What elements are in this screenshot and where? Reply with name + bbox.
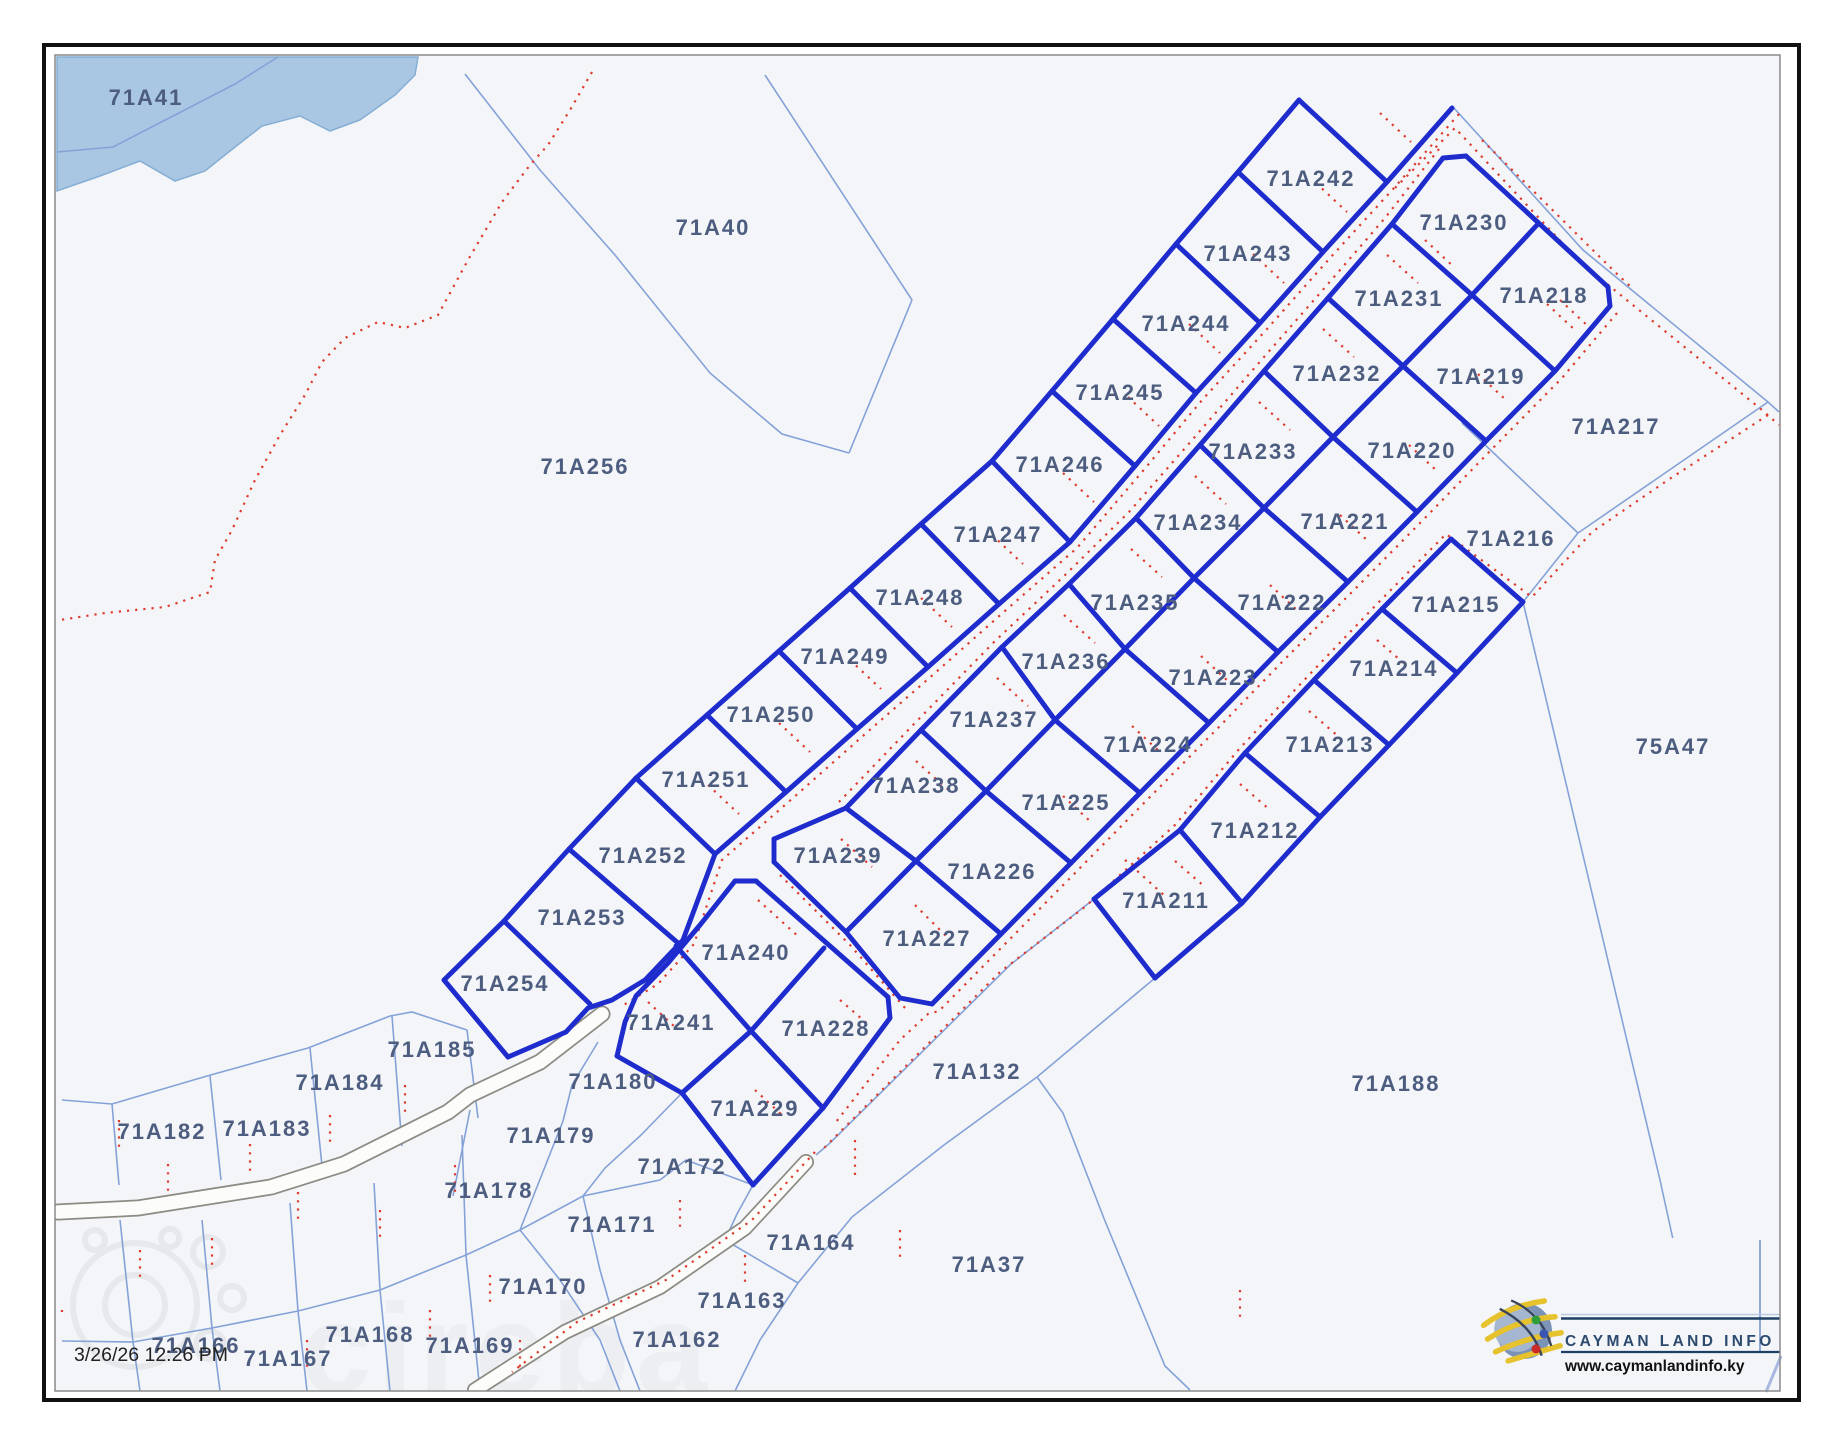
svg-text:71A183: 71A183 [222,1116,311,1141]
svg-text:71A224: 71A224 [1103,732,1192,757]
svg-text:71A170: 71A170 [498,1274,587,1299]
svg-text:71A236: 71A236 [1021,649,1110,674]
svg-text:71A169: 71A169 [425,1333,514,1358]
svg-text:71A211: 71A211 [1122,888,1210,913]
svg-text:71A132: 71A132 [932,1059,1021,1084]
svg-text:71A215: 71A215 [1411,592,1500,617]
svg-text:71A248: 71A248 [875,585,964,610]
svg-text:71A243: 71A243 [1203,241,1292,266]
svg-text:71A180: 71A180 [568,1069,657,1094]
svg-text:71A229: 71A229 [710,1096,799,1121]
svg-text:71A218: 71A218 [1499,283,1588,308]
svg-text:71A223: 71A223 [1168,665,1257,690]
svg-text:71A244: 71A244 [1141,311,1230,336]
svg-text:71A231: 71A231 [1354,286,1443,311]
svg-text:71A230: 71A230 [1419,210,1508,235]
svg-text:71A217: 71A217 [1571,414,1660,439]
svg-text:www.caymanlandinfo.ky: www.caymanlandinfo.ky [1564,1358,1745,1375]
svg-text:71A240: 71A240 [701,940,790,965]
svg-text:71A253: 71A253 [537,905,626,930]
svg-text:71A237: 71A237 [949,707,1038,732]
svg-text:71A216: 71A216 [1466,526,1555,551]
svg-text:71A242: 71A242 [1266,166,1355,191]
svg-text:71A222: 71A222 [1237,590,1326,615]
svg-text:71A245: 71A245 [1075,380,1164,405]
svg-text:71A249: 71A249 [800,644,889,669]
svg-text:71A233: 71A233 [1208,439,1297,464]
svg-text:71A234: 71A234 [1153,510,1242,535]
svg-text:71A213: 71A213 [1285,732,1374,757]
svg-text:71A172: 71A172 [637,1154,726,1179]
svg-text:71A178: 71A178 [444,1178,533,1203]
svg-text:71A221: 71A221 [1300,509,1389,534]
svg-text:71A246: 71A246 [1015,452,1104,477]
svg-text:71A188: 71A188 [1351,1071,1440,1096]
svg-text:71A256: 71A256 [540,454,629,479]
svg-text:71A252: 71A252 [598,843,687,868]
svg-text:71A162: 71A162 [632,1327,721,1352]
svg-text:71A163: 71A163 [697,1288,786,1313]
svg-text:71A247: 71A247 [953,522,1042,547]
svg-text:71A41: 71A41 [109,85,184,110]
svg-text:75A47: 75A47 [1636,734,1711,759]
svg-text:71A228: 71A228 [781,1016,870,1041]
svg-text:71A235: 71A235 [1090,590,1179,615]
svg-text:71A184: 71A184 [295,1070,384,1095]
svg-text:71A182: 71A182 [117,1119,206,1144]
svg-text:71A164: 71A164 [766,1230,855,1255]
svg-text:71A185: 71A185 [387,1037,476,1062]
svg-text:71A171: 71A171 [567,1212,656,1237]
svg-text:71A226: 71A226 [947,859,1036,884]
svg-text:71A241: 71A241 [626,1010,715,1035]
svg-text:71A212: 71A212 [1210,818,1299,843]
svg-text:71A37: 71A37 [952,1252,1027,1277]
svg-text:3/26/26 12:26 PM: 3/26/26 12:26 PM [74,1344,228,1366]
svg-text:71A220: 71A220 [1367,438,1456,463]
svg-text:71A250: 71A250 [726,702,815,727]
svg-text:71A232: 71A232 [1292,361,1381,386]
svg-text:CAYMAN LAND INFO: CAYMAN LAND INFO [1565,1333,1775,1350]
svg-text:71A225: 71A225 [1021,790,1110,815]
svg-text:71A251: 71A251 [661,767,750,792]
svg-text:71A179: 71A179 [506,1123,595,1148]
svg-text:71A227: 71A227 [882,926,971,951]
svg-text:71A239: 71A239 [793,843,882,868]
svg-text:71A168: 71A168 [325,1322,414,1347]
svg-text:71A254: 71A254 [460,971,549,996]
svg-text:71A40: 71A40 [676,215,751,240]
svg-text:71A238: 71A238 [871,773,960,798]
svg-text:71A219: 71A219 [1436,364,1525,389]
svg-text:71A214: 71A214 [1349,656,1438,681]
svg-text:71A167: 71A167 [243,1346,332,1371]
